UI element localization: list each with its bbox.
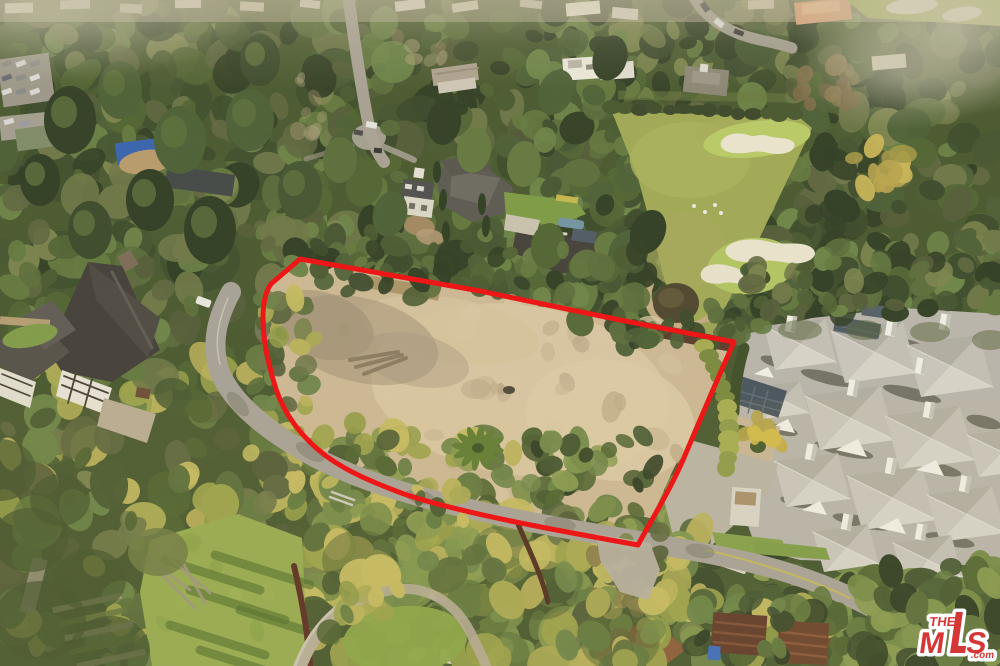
- svg-text:M: M: [917, 627, 947, 660]
- svg-text:.com: .com: [970, 650, 995, 661]
